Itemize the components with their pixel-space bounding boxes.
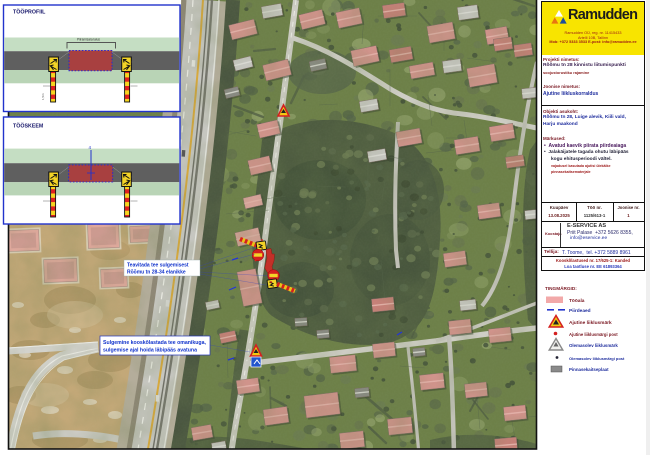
svg-text:Ajutine liiklusmärgi post: Ajutine liiklusmärgi post [569, 332, 618, 337]
svg-text:Olemasolev liiklusmärk: Olemasolev liiklusmärk [569, 343, 618, 348]
svg-text:Tööala: Tööala [569, 298, 585, 304]
svg-text:Ajutine liiklusmärk: Ajutine liiklusmärk [569, 320, 612, 326]
svg-text:Piirdeaed: Piirdeaed [569, 308, 591, 314]
svg-text:TÖÖSKEEM: TÖÖSKEEM [13, 123, 44, 130]
svg-text:Olemasolev liiklusmärgi post: Olemasolev liiklusmärgi post [569, 356, 625, 361]
svg-text:TÖÖPROFIIL: TÖÖPROFIIL [13, 9, 46, 16]
svg-text:Piiramisala laius: Piiramisala laius [77, 38, 100, 42]
svg-text:Pinnasekaitseplaat: Pinnasekaitseplaat [569, 367, 609, 372]
svg-text:1,5m: 1,5m [41, 93, 45, 100]
